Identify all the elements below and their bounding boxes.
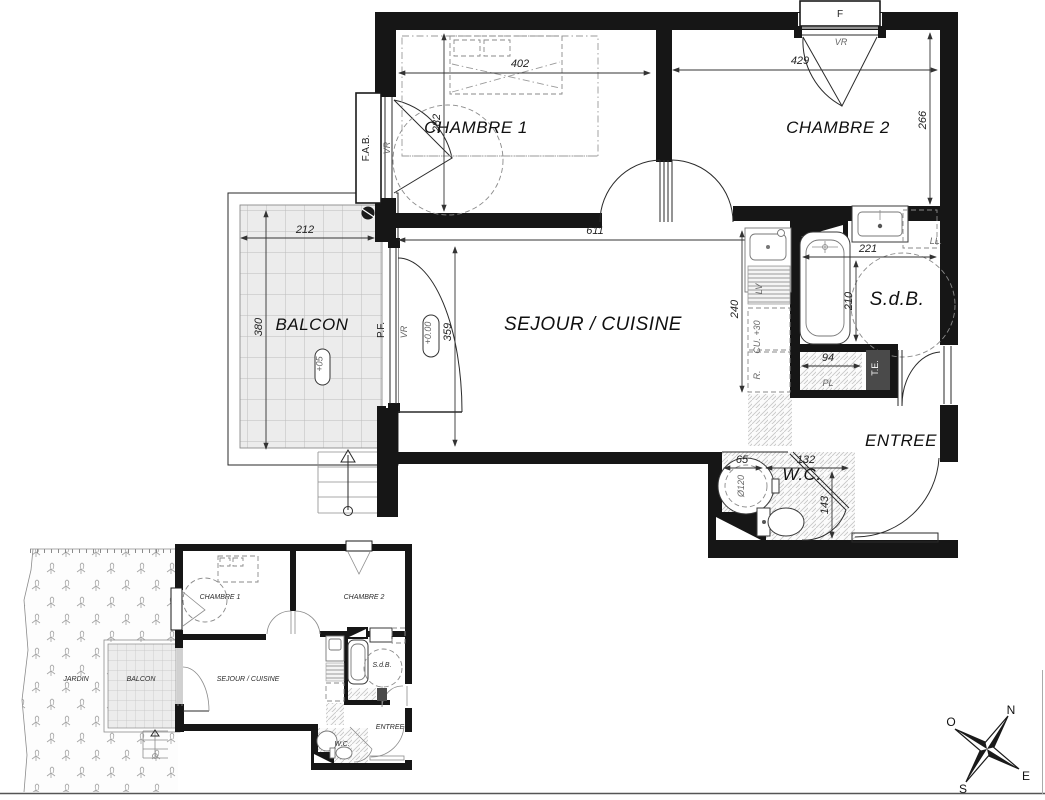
chambre2-label: CHAMBRE 2 — [786, 118, 890, 137]
jardin-label: JARDIN — [62, 676, 89, 683]
counter-label: CU. +30 — [752, 320, 762, 353]
compass-west: O — [946, 715, 955, 729]
window-fab-shutter: VR — [382, 141, 392, 154]
mini-balcon-label: BALCON — [127, 676, 157, 683]
balcony: 212 380 BALCON +05 — [228, 193, 398, 465]
dim-chambre1-height: 282 — [431, 114, 443, 133]
chambre1-door — [600, 160, 664, 222]
floor-level: +0.00 — [423, 322, 433, 345]
main-plan: 212 380 BALCON +05 — [228, 1, 958, 558]
dim-kitchen-height: 240 — [729, 299, 741, 319]
chambre2-door — [668, 160, 733, 222]
dim-balcon-height: 380 — [253, 317, 265, 336]
sdb-label: S.d.B. — [870, 289, 925, 310]
compass-north: N — [1007, 703, 1016, 717]
mini-walls — [175, 544, 412, 770]
compass-east: E — [1022, 769, 1030, 783]
mini-sejour-label: SEJOUR / CUISINE — [217, 676, 280, 683]
mini-balcony: BALCON — [104, 640, 180, 732]
window-fab-label: F.A.B. — [361, 135, 372, 162]
kitchen: LV CU. +30 R. 240 — [729, 228, 791, 392]
window-f-shutter: VR — [835, 37, 848, 47]
closet-label: PL — [822, 378, 833, 388]
washing-machine-label: LL. — [930, 236, 943, 246]
dim-sdb-width: 221 — [858, 243, 877, 255]
dim-chambre2-height: 266 — [917, 110, 929, 130]
balcony-level: +05 — [315, 355, 325, 371]
water-heater — [718, 458, 774, 514]
mini-sdb-label: S.d.B. — [372, 662, 391, 669]
entree-label: ENTREE — [865, 431, 937, 450]
mini-wc-label: W.C. — [334, 741, 349, 748]
mini-entree-label: ENTREE — [376, 724, 405, 731]
dim-sejour-width: 611 — [586, 225, 604, 237]
fridge-label: R. — [752, 371, 762, 380]
window-fab: F.A.B. VR — [356, 89, 452, 206]
dim-sejour-height: 359 — [442, 323, 454, 341]
entry-door — [852, 458, 939, 542]
walls — [375, 12, 958, 558]
toilet — [757, 508, 804, 536]
dim-chambre1-width: 402 — [511, 58, 529, 70]
dim-chambre2-width: 429 — [791, 55, 809, 67]
dim-wc-w1: 65 — [736, 454, 749, 466]
water-heater-label: Ø120 — [736, 475, 746, 498]
window-f-label: F — [837, 9, 843, 20]
mini-chambre1-label: CHAMBRE 1 — [200, 594, 241, 601]
pf-shutter: VR — [399, 325, 409, 338]
mini-chambre2-label: CHAMBRE 2 — [344, 594, 385, 601]
entree: ENTREE — [852, 431, 939, 542]
mini-plan: JARDIN BALCON — [22, 541, 412, 792]
electrical-panel-label: T.E. — [870, 360, 880, 376]
dim-sdb-height: 210 — [843, 291, 855, 311]
balcon-label: BALCON — [276, 315, 349, 334]
dim-wc-h: 143 — [819, 495, 831, 514]
floor-level-pill: +0.00 — [423, 315, 439, 357]
pf-label: P.F. — [376, 322, 387, 338]
window-f: F VR — [794, 1, 886, 106]
floor-plan-page: 212 380 BALCON +05 — [0, 0, 1045, 800]
dim-balcon-width: 212 — [295, 224, 314, 236]
sejour-label: SEJOUR / CUISINE — [504, 314, 682, 335]
floor-plan-svg: 212 380 BALCON +05 — [0, 0, 1045, 800]
balcony-level-pill: +05 — [315, 349, 331, 385]
dishwasher-label: LV — [754, 283, 764, 295]
exterior-stairs — [318, 450, 378, 516]
dim-closet-width: 94 — [822, 352, 834, 364]
compass-rose: N E S O — [946, 703, 1030, 796]
